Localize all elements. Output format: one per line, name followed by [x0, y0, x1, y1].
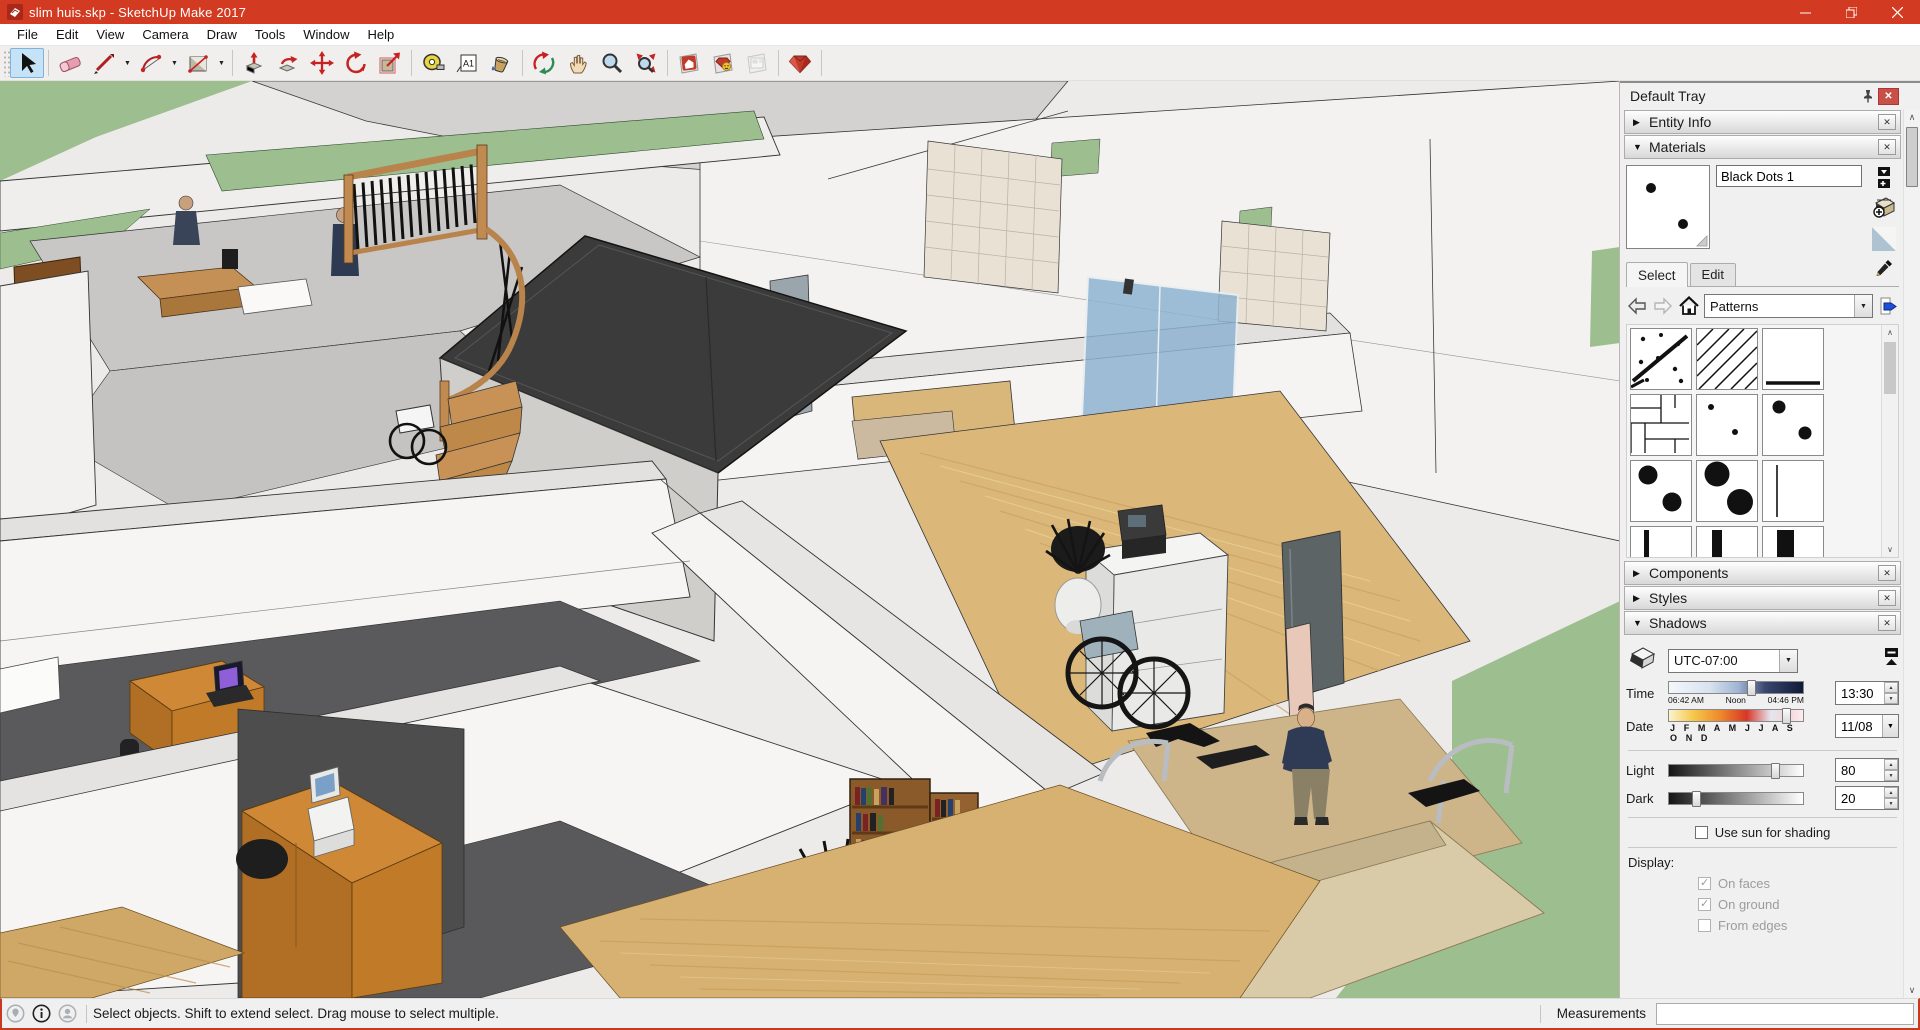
- default-tray: Default Tray ✕ ▶ Entity Info ✕ ▼ Materia…: [1620, 81, 1920, 998]
- geolocation-icon[interactable]: [2, 1004, 28, 1023]
- viewport-scene: [0, 81, 1620, 998]
- use-sun-checkbox[interactable]: [1695, 826, 1708, 839]
- chevron-down-icon[interactable]: ▼: [1882, 715, 1898, 737]
- display-on-ground: On ground: [1698, 897, 1899, 912]
- pan-tool-button[interactable]: [561, 48, 595, 78]
- section-entity-info[interactable]: ▶ Entity Info ✕: [1624, 110, 1901, 134]
- extension-warehouse-button[interactable]: [783, 48, 817, 78]
- display-from-edges: From edges: [1698, 918, 1899, 933]
- paint-bucket-icon: [489, 51, 513, 75]
- sketchup-logo-icon: [7, 4, 23, 20]
- pan-hand-icon: [566, 51, 590, 75]
- secondary-pane-icon[interactable]: [1877, 167, 1891, 189]
- push-pull-icon: [242, 51, 266, 75]
- zoom-tool-button[interactable]: [595, 48, 629, 78]
- move-tool-button[interactable]: [305, 48, 339, 78]
- spin-down-icon[interactable]: ▼: [1884, 693, 1898, 704]
- material-name-input[interactable]: [1716, 165, 1862, 187]
- tray-close-button[interactable]: ✕: [1878, 88, 1899, 105]
- light-spinner[interactable]: 80 ▲▼: [1835, 758, 1899, 782]
- share-model-button[interactable]: [706, 48, 740, 78]
- from-edges-checkbox: [1698, 919, 1711, 932]
- collapse-arrow-icon: ▶: [1633, 117, 1649, 128]
- rectangle-icon: [186, 51, 210, 75]
- minimize-button[interactable]: [1782, 0, 1828, 24]
- time-row: Time 06:42 AM Noon 04:46 PM 13:30: [1626, 681, 1899, 705]
- swatch-scrollbar[interactable]: ∧ ∨: [1881, 325, 1898, 557]
- swatch-medium-vbar[interactable]: [1696, 526, 1758, 558]
- toolbar: ▼ ▼ ▼ A1: [0, 46, 1920, 81]
- materials-tabs: Select Edit: [1626, 263, 1899, 287]
- text-icon: A1: [455, 51, 479, 75]
- timezone-dropdown[interactable]: UTC-07:00 ▼: [1668, 649, 1798, 673]
- swatch-thin-vbar[interactable]: [1630, 526, 1692, 558]
- zoom-icon: [600, 51, 624, 75]
- spin-up-icon[interactable]: ▲: [1884, 759, 1898, 770]
- home-icon[interactable]: [1678, 295, 1700, 317]
- eyedropper-icon[interactable]: [1873, 259, 1893, 284]
- on-faces-checkbox: [1698, 877, 1711, 890]
- svg-text:A1: A1: [463, 59, 474, 69]
- details-arrow-icon[interactable]: [1877, 295, 1899, 317]
- date-dropdown[interactable]: 11/08 ▼: [1835, 714, 1899, 738]
- get-models-icon: [677, 51, 701, 75]
- scroll-up-icon[interactable]: ∧: [1904, 109, 1920, 125]
- create-material-icon[interactable]: [1872, 195, 1896, 219]
- orbit-tool-button[interactable]: [527, 48, 561, 78]
- select-arrow-icon: [15, 51, 39, 75]
- section-materials[interactable]: ▼ Materials ✕: [1624, 135, 1901, 159]
- menu-camera[interactable]: Camera: [133, 24, 197, 46]
- zoom-extents-tool-button[interactable]: [629, 48, 663, 78]
- menu-file[interactable]: File: [8, 24, 47, 46]
- tray-titlebar: Default Tray ✕: [1624, 83, 1901, 109]
- display-label: Display:: [1628, 855, 1899, 870]
- forward-arrow-icon: [1652, 295, 1674, 317]
- sketchup-window: slim huis.skp - SketchUp Make 2017 File …: [0, 0, 1920, 1030]
- scale-tool-button[interactable]: [373, 48, 407, 78]
- rectangle-tool-caret[interactable]: ▼: [215, 48, 228, 78]
- send-to-layout-button: [740, 48, 774, 78]
- on-ground-checkbox: [1698, 898, 1711, 911]
- layout-icon: [745, 51, 769, 75]
- menu-tools[interactable]: Tools: [246, 24, 294, 46]
- push-pull-tool-button[interactable]: [237, 48, 271, 78]
- menu-help[interactable]: Help: [359, 24, 404, 46]
- swatch-thick-vbar[interactable]: [1762, 526, 1824, 558]
- ruby-gem-icon: [788, 51, 812, 75]
- section-components[interactable]: ▶ Components ✕: [1624, 561, 1901, 585]
- rectangle-tool-button[interactable]: [181, 48, 215, 78]
- materials-panel: Select Edit Patterns ▼: [1624, 160, 1901, 560]
- menubar: File Edit View Camera Draw Tools Window …: [0, 24, 1920, 46]
- menu-edit[interactable]: Edit: [47, 24, 87, 46]
- close-button[interactable]: [1874, 0, 1920, 24]
- collection-dropdown[interactable]: Patterns ▼: [1704, 294, 1873, 318]
- dark-spinner[interactable]: 20 ▲▼: [1835, 786, 1899, 810]
- follow-me-icon: [276, 51, 300, 75]
- tab-select[interactable]: Select: [1626, 262, 1688, 287]
- select-tool-button[interactable]: [10, 48, 44, 78]
- scroll-up-icon[interactable]: ∧: [1882, 325, 1898, 340]
- arc-tool-button[interactable]: [134, 48, 168, 78]
- styles-close-button[interactable]: ✕: [1878, 590, 1896, 606]
- material-preview[interactable]: [1626, 165, 1710, 249]
- use-sun-row[interactable]: Use sun for shading: [1626, 825, 1899, 840]
- swatch-dots-with-line[interactable]: [1630, 328, 1692, 390]
- account-icon[interactable]: [54, 1004, 80, 1023]
- entity-info-close-button[interactable]: ✕: [1878, 114, 1896, 130]
- chevron-down-icon[interactable]: ▼: [1779, 650, 1797, 672]
- materials-close-button[interactable]: ✕: [1878, 139, 1896, 155]
- eraser-tool-button[interactable]: [53, 48, 87, 78]
- swatch-large-dots[interactable]: [1630, 460, 1692, 522]
- spin-up-icon[interactable]: ▲: [1884, 682, 1898, 693]
- pin-icon[interactable]: [1858, 87, 1878, 105]
- measurements-label: Measurements: [1557, 1006, 1646, 1021]
- statusbar: Select objects. Shift to extend select. …: [0, 998, 1920, 1030]
- arc-tool-caret[interactable]: ▼: [168, 48, 181, 78]
- menu-draw[interactable]: Draw: [198, 24, 246, 46]
- spin-down-icon[interactable]: ▼: [1884, 770, 1898, 781]
- materials-nav: Patterns ▼: [1626, 287, 1899, 321]
- components-close-button[interactable]: ✕: [1878, 565, 1896, 581]
- status-message: Select objects. Shift to extend select. …: [93, 1006, 499, 1021]
- light-slider[interactable]: [1668, 764, 1804, 777]
- toolbar-grip[interactable]: [2, 49, 10, 77]
- line-tool-button[interactable]: [87, 48, 121, 78]
- share-model-icon: [711, 51, 735, 75]
- arc-icon: [139, 51, 163, 75]
- window-title: slim huis.skp - SketchUp Make 2017: [29, 5, 246, 20]
- default-material-icon[interactable]: [1870, 225, 1898, 253]
- shadow-toggle-icon[interactable]: [1626, 644, 1668, 677]
- swatch-medium-dots[interactable]: [1762, 394, 1824, 456]
- scroll-down-icon[interactable]: ∨: [1904, 982, 1920, 998]
- dark-slider[interactable]: [1668, 792, 1804, 805]
- pencil-icon: [92, 51, 116, 75]
- dark-row: Dark 20 ▲▼: [1626, 786, 1899, 810]
- tape-measure-icon: [421, 51, 445, 75]
- info-icon[interactable]: [28, 1004, 54, 1023]
- viewport[interactable]: [0, 81, 1620, 998]
- line-tool-caret[interactable]: ▼: [121, 48, 134, 78]
- expand-arrow-icon: ▼: [1633, 142, 1649, 152]
- swatch-diagonal-hatch[interactable]: [1696, 328, 1758, 390]
- paint-bucket-tool-button[interactable]: [484, 48, 518, 78]
- rotate-tool-button[interactable]: [339, 48, 373, 78]
- tray-scrollbar[interactable]: ∧ ∨: [1903, 109, 1920, 998]
- pattern-swatches: ∧ ∨: [1626, 324, 1899, 558]
- time-slider[interactable]: [1668, 681, 1804, 694]
- get-models-button[interactable]: [672, 48, 706, 78]
- menu-view[interactable]: View: [87, 24, 133, 46]
- back-arrow-icon[interactable]: [1626, 295, 1648, 317]
- tape-measure-tool-button[interactable]: [416, 48, 450, 78]
- swatch-underline[interactable]: [1762, 328, 1824, 390]
- time-spinner[interactable]: 13:30 ▲▼: [1835, 681, 1899, 705]
- swatch-panel-lines[interactable]: [1630, 394, 1692, 456]
- swatch-xlarge-dots[interactable]: [1696, 460, 1758, 522]
- display-on-faces: On faces: [1698, 876, 1899, 891]
- shadows-panel: UTC-07:00 ▼ Time 06:42 AM Noon: [1624, 636, 1901, 943]
- swatch-small-dots[interactable]: [1696, 394, 1758, 456]
- restore-button[interactable]: [1828, 0, 1874, 24]
- titlebar: slim huis.skp - SketchUp Make 2017: [0, 0, 1920, 24]
- menu-window[interactable]: Window: [294, 24, 358, 46]
- text-tool-button[interactable]: A1: [450, 48, 484, 78]
- scale-icon: [378, 51, 402, 75]
- light-row: Light 80 ▲▼: [1626, 758, 1899, 782]
- date-slider[interactable]: [1668, 709, 1804, 722]
- chevron-down-icon[interactable]: ▼: [1854, 295, 1872, 317]
- move-icon: [310, 51, 334, 75]
- swatch-thin-vline[interactable]: [1762, 460, 1824, 522]
- shadows-close-button[interactable]: ✕: [1878, 615, 1896, 631]
- section-shadows[interactable]: ▼ Shadows ✕: [1624, 611, 1901, 635]
- spin-up-icon[interactable]: ▲: [1884, 787, 1898, 798]
- eraser-icon: [57, 51, 83, 75]
- tab-edit[interactable]: Edit: [1690, 263, 1736, 286]
- spin-down-icon[interactable]: ▼: [1884, 798, 1898, 809]
- shadow-details-icon[interactable]: [1884, 647, 1899, 674]
- tray-title-label: Default Tray: [1630, 88, 1705, 104]
- rotate-icon: [344, 51, 368, 75]
- section-styles[interactable]: ▶ Styles ✕: [1624, 586, 1901, 610]
- measurements-input[interactable]: [1656, 1003, 1914, 1025]
- scroll-down-icon[interactable]: ∨: [1882, 542, 1898, 557]
- orbit-icon: [532, 51, 556, 75]
- zoom-extents-icon: [634, 51, 658, 75]
- follow-me-tool-button[interactable]: [271, 48, 305, 78]
- date-row: Date J F M A M J J A S O N D 11/08 ▼: [1626, 709, 1899, 743]
